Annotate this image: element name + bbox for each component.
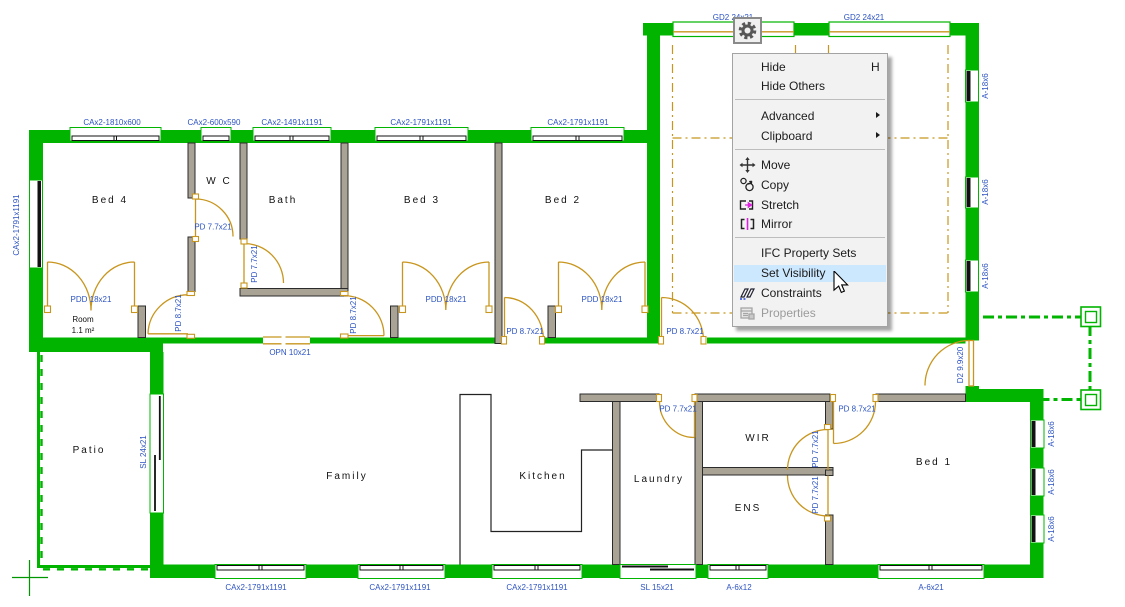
svg-text:1.1 m²: 1.1 m² <box>72 326 95 335</box>
svg-text:SL 24x21: SL 24x21 <box>139 435 148 469</box>
svg-text:CAx2-1791x1191: CAx2-1791x1191 <box>12 194 21 256</box>
svg-text:CAx2-1791x1191: CAx2-1791x1191 <box>390 118 452 127</box>
svg-text:A-18x6: A-18x6 <box>981 179 990 205</box>
svg-text:WIR: WIR <box>745 433 770 444</box>
svg-text:Bed 4: Bed 4 <box>92 195 128 206</box>
svg-text:Bed 3: Bed 3 <box>404 195 440 206</box>
svg-text:CAx2-600x590: CAx2-600x590 <box>188 118 241 127</box>
svg-text:Room: Room <box>72 315 94 324</box>
svg-text:W C: W C <box>206 176 231 187</box>
svg-text:PD 7.7x21: PD 7.7x21 <box>659 405 697 414</box>
svg-text:A-18x6: A-18x6 <box>1047 421 1056 447</box>
svg-text:SL 15x21: SL 15x21 <box>640 583 674 592</box>
svg-text:PDD 18x21: PDD 18x21 <box>582 295 623 304</box>
svg-text:PDD 18x21: PDD 18x21 <box>71 295 112 304</box>
svg-text:Bath: Bath <box>269 195 298 206</box>
svg-text:CAx2-1791x1191: CAx2-1791x1191 <box>225 583 287 592</box>
svg-text:PD 8.7x21: PD 8.7x21 <box>838 405 876 414</box>
svg-text:PD 8.7x21: PD 8.7x21 <box>174 294 183 332</box>
svg-text:A-18x6: A-18x6 <box>1047 516 1056 542</box>
svg-text:A-18x6: A-18x6 <box>981 73 990 99</box>
svg-text:CAx2-1810x600: CAx2-1810x600 <box>83 118 141 127</box>
svg-text:CAx2-1791x1191: CAx2-1791x1191 <box>506 583 568 592</box>
svg-text:A-6x12: A-6x12 <box>726 583 752 592</box>
svg-text:PD 8.7x21: PD 8.7x21 <box>506 327 544 336</box>
svg-text:PD 7.7x21: PD 7.7x21 <box>250 245 259 283</box>
svg-text:OPN 10x21: OPN 10x21 <box>269 348 311 357</box>
svg-text:Bed 2: Bed 2 <box>545 195 581 206</box>
svg-text:CAx2-1491x1191: CAx2-1491x1191 <box>261 118 323 127</box>
svg-text:PD 7.7x21: PD 7.7x21 <box>194 223 232 232</box>
svg-text:GD2 24x21: GD2 24x21 <box>844 13 885 22</box>
svg-text:PD 8.7x21: PD 8.7x21 <box>666 327 704 336</box>
svg-text:Kitchen: Kitchen <box>519 471 566 482</box>
svg-text:Laundry: Laundry <box>634 474 684 485</box>
svg-text:A-18x6: A-18x6 <box>981 263 990 289</box>
svg-text:D2 9.9x20: D2 9.9x20 <box>956 346 965 383</box>
svg-text:PDD 18x21: PDD 18x21 <box>426 295 467 304</box>
svg-text:PD 8.7x21: PD 8.7x21 <box>349 296 358 334</box>
svg-text:Family: Family <box>326 471 367 482</box>
svg-text:Patio: Patio <box>73 445 106 456</box>
svg-text:ENS: ENS <box>735 503 762 514</box>
svg-text:A-18x6: A-18x6 <box>1047 469 1056 495</box>
svg-text:CAx2-1791x1191: CAx2-1791x1191 <box>547 118 609 127</box>
svg-text:A-6x21: A-6x21 <box>918 583 944 592</box>
svg-text:Bed 1: Bed 1 <box>916 457 952 468</box>
svg-text:CAx2-1791x1191: CAx2-1791x1191 <box>369 583 431 592</box>
svg-text:PD 7.7x21: PD 7.7x21 <box>811 430 820 468</box>
svg-text:PD 7.7x21: PD 7.7x21 <box>811 476 820 514</box>
